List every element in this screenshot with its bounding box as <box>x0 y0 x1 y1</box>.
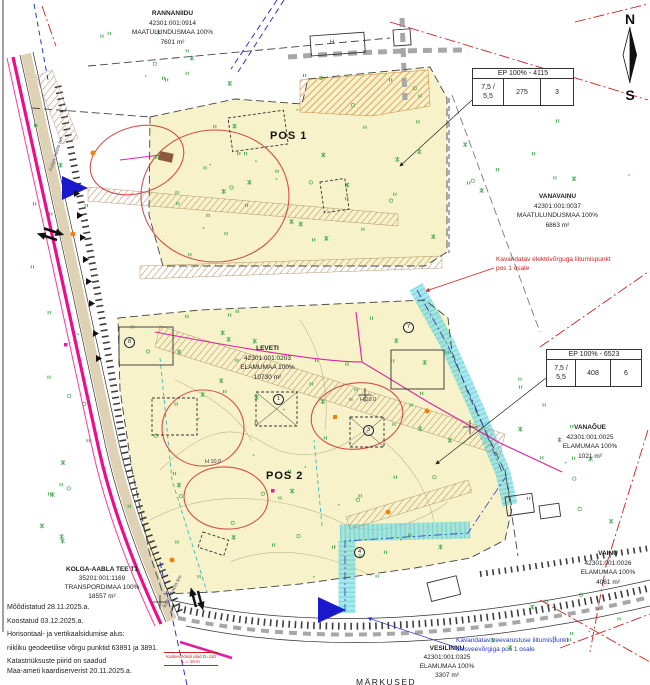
vegetation-symbol <box>203 227 205 229</box>
vegetation-symbol <box>471 179 474 182</box>
vegetation-symbol <box>59 163 63 168</box>
spec-cell-height: 7,5 / 5,5 <box>547 360 576 386</box>
vegetation-symbol <box>162 77 164 80</box>
site-plan-map: N S RANNANIIDU 42301:001:0914 MAATULUNDU… <box>0 0 650 685</box>
vegetation-symbol <box>578 507 581 510</box>
vegetation-symbol <box>87 439 89 442</box>
vegetation-symbol <box>480 188 484 193</box>
vegetation-symbol <box>61 460 65 465</box>
vegetation-symbol <box>588 631 590 633</box>
vegetation-symbol <box>209 164 211 166</box>
circled-number: 1 <box>273 394 284 405</box>
vegetation-symbol <box>165 78 167 81</box>
parcel-label-leveti: LEVETI 42301:001:0203 ELAMUMAA 100% 1073… <box>215 344 320 382</box>
vegetation-symbol <box>276 178 278 180</box>
vegetation-symbol <box>67 394 70 397</box>
vegetation-symbol <box>618 617 620 620</box>
svg-text:N: N <box>625 11 635 27</box>
survey-note: Maa-ameti kaardiserverist 20.11.2025.a. <box>7 668 132 675</box>
survey-note: Mõõdistatud 28.11.2025.a. <box>7 604 89 611</box>
vegetation-symbol <box>609 519 613 524</box>
vegetation-symbol <box>628 174 630 176</box>
pos2-label: POS 2 <box>266 470 303 482</box>
parcel-label-rannaniidu: RANNANIIDU 42301:001:0914 MAATULUNDUSMAA… <box>90 9 255 47</box>
vegetation-symbol <box>186 72 188 75</box>
vegetation-symbol <box>31 265 33 268</box>
vegetation-symbol <box>198 418 200 420</box>
markused-heading: MÄRKUSED <box>356 677 416 685</box>
vegetation-symbol <box>519 377 521 380</box>
vegetation-symbol <box>570 632 572 635</box>
vegetation-symbol <box>463 142 467 147</box>
spec-table-header: EP 100% - 4115 <box>473 69 573 79</box>
vegetation-symbol <box>253 454 255 456</box>
vegetation-symbol <box>61 538 65 543</box>
circled-number: 4 <box>354 547 365 558</box>
vegetation-symbol <box>153 62 156 65</box>
vegetation-symbol <box>40 523 44 528</box>
survey-note: Koostatud 03.12.2025.a. <box>7 618 83 625</box>
spec-table-pos2: EP 100% - 6523 7,5 / 5,5 408 6 <box>546 349 642 387</box>
vegetation-symbol <box>145 75 147 77</box>
vegetation-symbol <box>313 576 315 578</box>
vegetation-symbol <box>545 600 547 603</box>
vegetation-symbol <box>228 81 232 86</box>
vegetation-symbol <box>496 168 498 171</box>
vegetation-symbol <box>78 333 80 335</box>
vegetation-symbol <box>190 55 194 60</box>
vegetation-symbol <box>334 545 336 547</box>
building-h-label: H <box>330 40 334 46</box>
survey-note: riikliku geodeetilise võrgu punktid 6389… <box>7 645 158 652</box>
vegetation-symbol <box>565 462 567 464</box>
vegetation-symbol <box>554 176 556 179</box>
circled-number: 7 <box>403 322 414 333</box>
vegetation-symbol <box>530 604 534 609</box>
spec-table-header: EP 100% - 6523 <box>547 350 641 360</box>
parcel-label-vainu: VAINU 42301:001:0026 ELAMUMAA 100% 4061 … <box>562 549 650 587</box>
vegetation-symbol <box>67 487 70 490</box>
vegetation-symbol <box>303 74 305 77</box>
vegetation-symbol <box>85 204 87 207</box>
spec-cell-height: 7,5 / 5,5 <box>473 79 504 105</box>
vegetation-symbol <box>50 212 52 215</box>
vegetation-symbol <box>376 574 378 577</box>
vegetation-symbol <box>48 376 50 379</box>
vegetation-symbol <box>557 119 559 122</box>
survey-note: Katastriüksuste piirid on saadud <box>7 658 106 665</box>
vegetation-symbol <box>572 176 576 181</box>
vegetation-symbol <box>283 409 285 411</box>
vegetation-symbol <box>573 477 576 480</box>
vegetation-symbol <box>338 504 340 506</box>
parcel-label-kolga-aabla: KOLGA-AABLA TEE T1 35201:001:1169 TRANSP… <box>18 565 186 601</box>
building-height-label: H 10.0 <box>205 459 221 465</box>
vegetation-symbol <box>543 403 545 406</box>
water-connection-note: Kavandatav veevarustuse liitumispunkt üh… <box>456 636 616 654</box>
building-height-label: H 10.0 <box>360 397 376 403</box>
vegetation-symbol <box>518 427 522 432</box>
vegetation-symbol <box>467 181 469 184</box>
vegetation-symbol <box>60 534 64 539</box>
pos1-label: POS 1 <box>270 130 307 142</box>
spec-cell-count: 6 <box>611 360 641 386</box>
electric-connection-note: Kavandatav elektrivõrguga liitumispunkt … <box>496 255 648 273</box>
spec-cell-area: 275 <box>504 79 541 105</box>
vegetation-symbol <box>69 342 71 344</box>
vegetation-symbol <box>400 539 402 541</box>
vegetation-symbol <box>527 497 529 500</box>
vegetation-symbol <box>255 160 257 162</box>
vegetation-symbol <box>48 492 50 495</box>
north-arrow: N S <box>623 11 637 103</box>
circled-number: 3 <box>363 425 374 436</box>
parcel-label-vanaoue: VANAÕUE 42301:001:0025 ELAMUMAA 100% 102… <box>538 423 642 461</box>
circled-number: 8 <box>124 337 135 348</box>
vegetation-symbol <box>48 311 50 314</box>
protection-zone-note: Kaitsevööndi alad D=110 L = 10 m <box>164 652 218 666</box>
vegetation-symbol <box>33 202 35 205</box>
parcel-fills <box>118 67 512 594</box>
survey-note: Horisontaal- ja vertikaalsidumise alus: <box>7 631 125 638</box>
vegetation-symbol <box>60 483 62 486</box>
vegetation-symbol <box>519 385 521 388</box>
parcel-label-vanavainu: VANAVAINU 42301:001:0037 MAATULUNDUSMAA … <box>490 192 625 230</box>
spec-cell-area: 408 <box>576 360 611 386</box>
spec-cell-count: 3 <box>541 79 573 105</box>
vegetation-symbol <box>304 466 306 468</box>
vegetation-symbol <box>296 109 298 111</box>
vegetation-symbol <box>532 152 534 155</box>
spec-table-pos1: EP 100% - 4115 7,5 / 5,5 275 3 <box>472 68 574 106</box>
vegetation-symbol <box>186 49 188 52</box>
svg-text:S: S <box>625 87 634 103</box>
